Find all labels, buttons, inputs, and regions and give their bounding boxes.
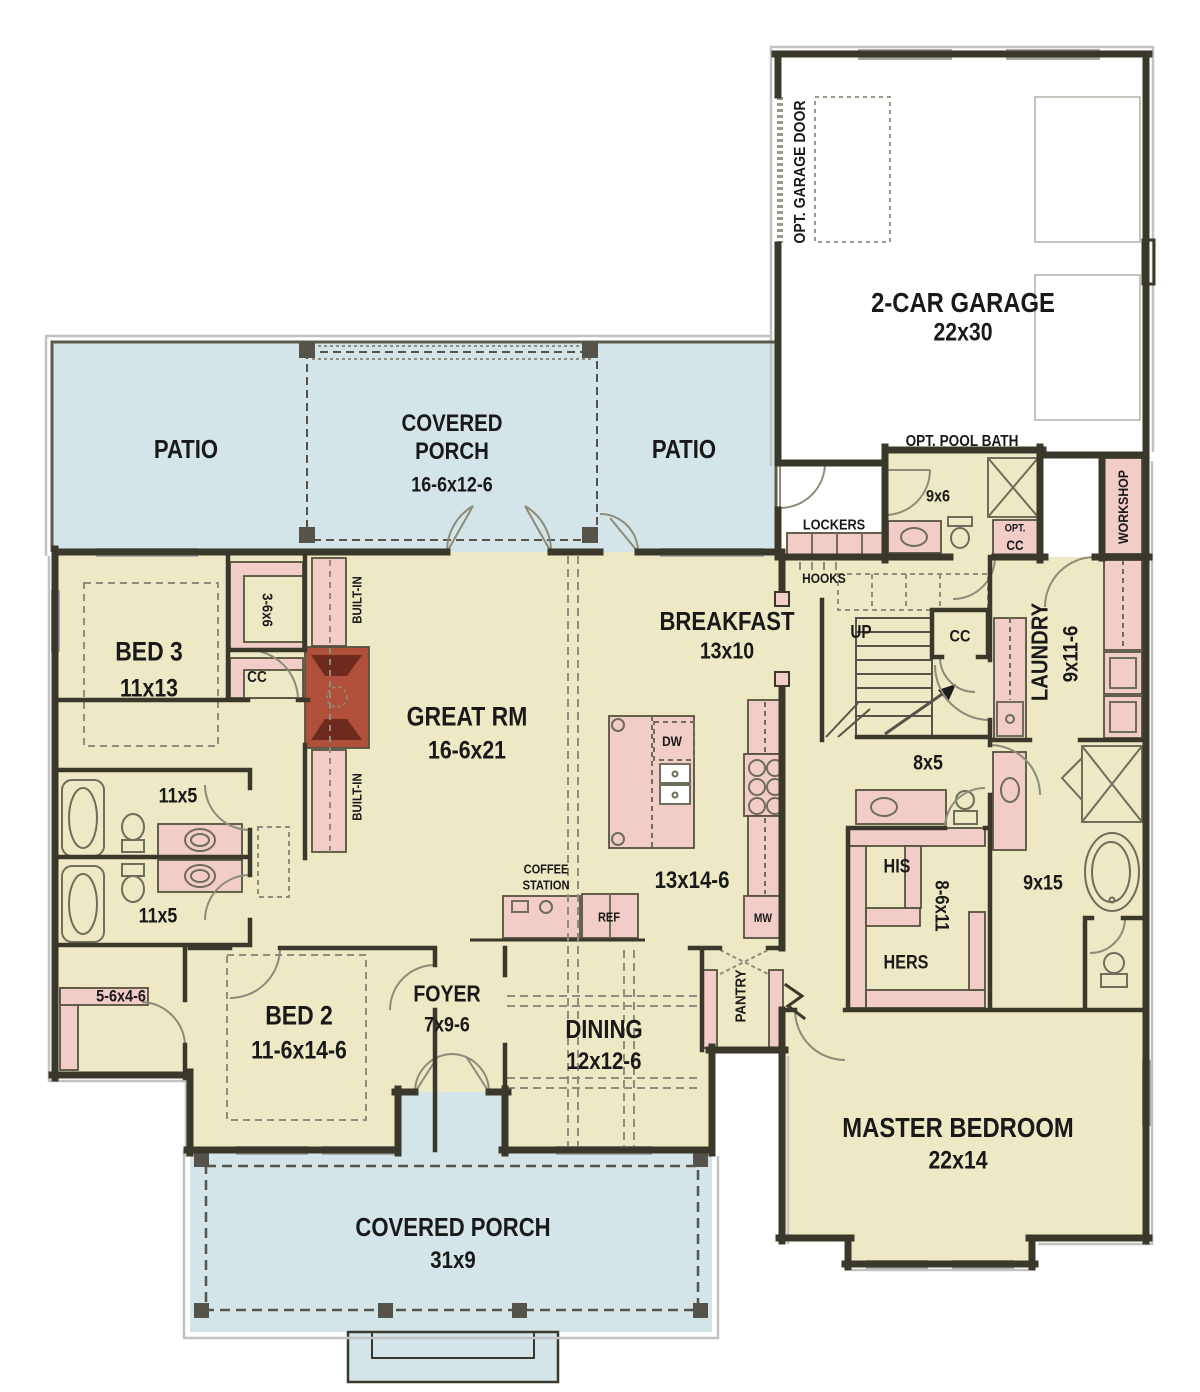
label-pantry: PANTRY — [734, 970, 749, 1023]
label-master: MASTER BEDROOM — [842, 1114, 1073, 1142]
floor-plan-drawing — [0, 0, 1200, 1392]
label-foyer-dims: 7x9-6 — [424, 1015, 470, 1036]
label-breakfast-dims: 13x10 — [700, 640, 754, 663]
label-opt-small: OPT. — [1005, 524, 1026, 535]
label-bath-upper: 11x5 — [159, 786, 198, 807]
garage-floor — [778, 54, 1146, 458]
side-yard — [712, 1050, 782, 1150]
label-pool-bath-dims: 9x6 — [926, 488, 950, 505]
entry-notch — [398, 1092, 505, 1150]
label-closet-3-6: 3-6x6 — [260, 593, 275, 627]
label-master-bath-dims: 9x15 — [1023, 873, 1063, 894]
label-dining: DINING — [565, 1016, 642, 1042]
label-pool-bath: OPT. POOL BATH — [906, 434, 1019, 450]
label-garage: 2-CAR GARAGE — [871, 289, 1055, 317]
label-closet-5-6: 5-6x4-6 — [96, 988, 146, 1005]
label-master-dims: 22x14 — [928, 1149, 987, 1174]
label-porch-top-dims: 16-6x12-6 — [411, 475, 492, 496]
label-opt-garage-door: OPT. GARAGE DOOR — [793, 100, 809, 243]
label-garage-dims: 22x30 — [933, 321, 992, 346]
fireplace — [305, 647, 369, 748]
label-stair-cc: CC — [950, 628, 971, 645]
label-porch-bottom-dims: 31x9 — [430, 1249, 475, 1273]
label-coffee-1: COFFEE — [524, 863, 569, 876]
label-opt-cc: CC — [1006, 538, 1023, 552]
label-workshop: WORKSHOP — [1116, 470, 1130, 544]
label-bath-lower: 11x5 — [139, 906, 178, 927]
label-hooks: HOOKS — [802, 571, 846, 585]
label-up: UP — [850, 623, 871, 641]
label-bed3-dims: 11x13 — [120, 677, 178, 702]
label-hall-dims: 8x5 — [913, 753, 943, 774]
label-patio-left: PATIO — [154, 436, 218, 462]
label-dw: DW — [662, 734, 682, 748]
label-porch-top-2: PORCH — [415, 440, 489, 464]
label-hers: HERS — [884, 954, 929, 973]
label-builtin-top: BUILT-IN — [351, 576, 364, 623]
label-his: HIS — [884, 858, 911, 877]
label-great: GREAT RM — [407, 704, 528, 731]
label-laundry: LAUNDRY — [1029, 603, 1052, 701]
label-mw: MW — [754, 912, 772, 924]
label-laundry-dims: 9x11-6 — [1061, 626, 1082, 683]
label-dining-dims: 12x12-6 — [567, 1050, 642, 1074]
label-lockers: LOCKERS — [803, 518, 865, 533]
label-kitchen-dims: 13x14-6 — [655, 869, 730, 893]
region-fills — [52, 54, 1146, 1382]
label-great-dims: 16-6x21 — [428, 739, 506, 764]
label-bed3-cc: CC — [247, 670, 267, 686]
label-ref: REF — [598, 911, 620, 924]
label-bed3: BED 3 — [115, 639, 183, 666]
label-bed2: BED 2 — [265, 1003, 333, 1030]
label-porch-top-1: COVERED — [402, 412, 503, 436]
label-foyer: FOYER — [413, 983, 480, 1006]
label-breakfast: BREAKFAST — [659, 608, 794, 634]
label-wic-dims: 8-6x11 — [932, 880, 951, 931]
label-porch-bottom: COVERED PORCH — [355, 1214, 550, 1240]
label-coffee-2: STATION — [523, 879, 570, 892]
floor-plan: OPT. GARAGE DOOR 2-CAR GARAGE 22x30 PATI… — [0, 0, 1200, 1392]
label-builtin-bottom: BUILT-IN — [351, 773, 364, 820]
label-patio-right: PATIO — [652, 436, 716, 462]
label-bed2-dims: 11-6x14-6 — [251, 1039, 347, 1064]
